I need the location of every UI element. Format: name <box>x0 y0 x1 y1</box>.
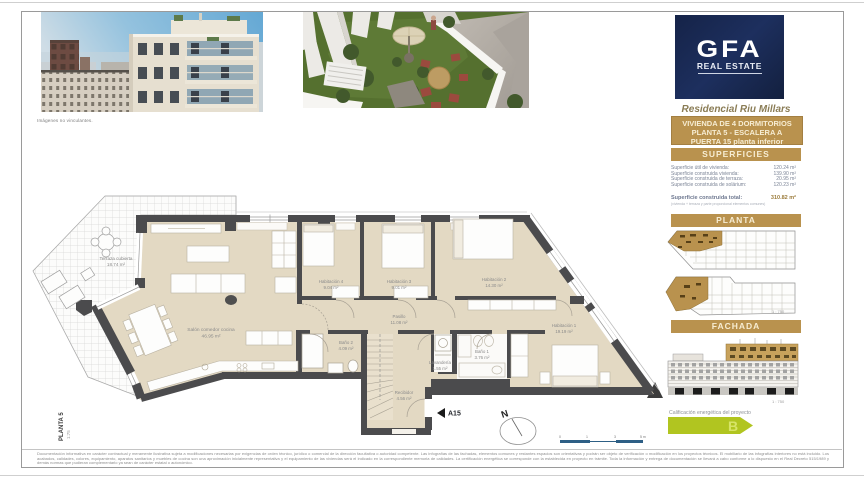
svg-text:4.09 m²: 4.09 m² <box>339 346 354 351</box>
svg-text:0: 0 <box>559 435 561 439</box>
svg-text:3.76 m²: 3.76 m² <box>475 355 490 360</box>
svg-text:1: 1 <box>586 435 588 439</box>
svg-text:Habitación 3: Habitación 3 <box>387 279 412 284</box>
svg-text:9.04 m²: 9.04 m² <box>324 285 339 290</box>
svg-text:14.30 m²: 14.30 m² <box>485 283 503 288</box>
svg-text:PLANTA 5: PLANTA 5 <box>59 412 65 441</box>
svg-text:46.95 m²: 46.95 m² <box>202 334 221 340</box>
svg-text:Recibidor: Recibidor <box>395 390 414 395</box>
svg-text:Habitación 4: Habitación 4 <box>319 279 344 284</box>
svg-text:Salón comedor cocina: Salón comedor cocina <box>187 327 235 333</box>
svg-text:Baño 1: Baño 1 <box>475 349 489 354</box>
svg-text:A15: A15 <box>448 411 461 418</box>
svg-text:4.56 m²: 4.56 m² <box>397 396 412 401</box>
svg-text:Pasillo: Pasillo <box>393 314 406 319</box>
svg-text:3: 3 <box>614 435 616 439</box>
svg-text:18.74 m²: 18.74 m² <box>107 262 126 267</box>
svg-text:Habitación 2: Habitación 2 <box>482 277 507 282</box>
svg-text:Lavandería: Lavandería <box>429 360 452 365</box>
svg-text:19.19 m²: 19.19 m² <box>555 329 573 334</box>
svg-text:N: N <box>500 408 510 421</box>
svg-text:Terraza cubierta: Terraza cubierta <box>100 256 133 261</box>
svg-text:1:75: 1:75 <box>66 430 71 439</box>
svg-text:Baño 2: Baño 2 <box>339 340 353 345</box>
svg-text:Habitación 1: Habitación 1 <box>552 323 577 328</box>
svg-text:11.08 m²: 11.08 m² <box>390 320 408 325</box>
svg-text:9.01 m²: 9.01 m² <box>392 285 407 290</box>
svg-text:5 m: 5 m <box>640 435 646 439</box>
svg-text:1.55 m²: 1.55 m² <box>433 366 448 371</box>
